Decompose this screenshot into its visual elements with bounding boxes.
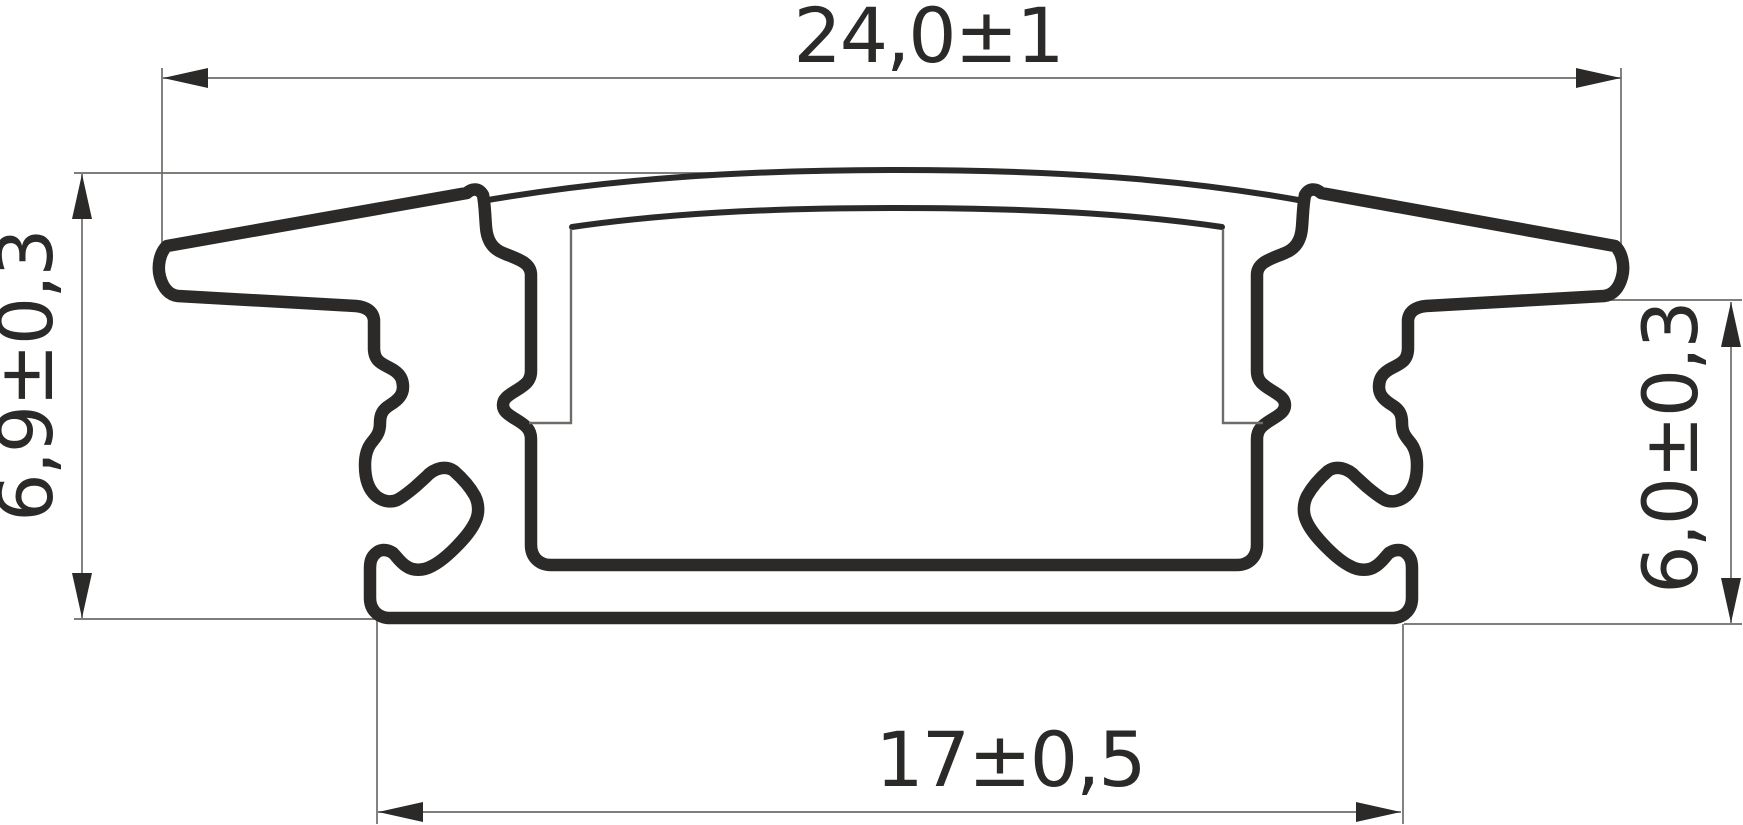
technical-drawing-canvas: 24,0±1 6,9±0,3 6,0±0,3 17±0,5 bbox=[0, 0, 1743, 825]
left-dim-arrow-bottom bbox=[72, 573, 92, 618]
top-dim-label: 24,0±1 bbox=[793, 0, 1062, 80]
diffuser-cover bbox=[482, 170, 1304, 227]
right-dim-label: 6,0±0,3 bbox=[1626, 302, 1715, 593]
dimension-labels: 24,0±1 6,9±0,3 6,0±0,3 17±0,5 bbox=[0, 0, 1715, 804]
bottom-dim-arrow-right bbox=[1356, 802, 1401, 822]
extension-lines bbox=[74, 68, 1742, 824]
top-dim-arrow-right bbox=[1576, 68, 1621, 88]
bottom-dim-label: 17±0,5 bbox=[875, 715, 1144, 804]
left-dim-arrow-top bbox=[72, 174, 92, 219]
cover-inner-arch bbox=[572, 208, 1222, 227]
dimension-arrows bbox=[72, 68, 1741, 822]
bottom-dim-arrow-left bbox=[378, 802, 423, 822]
aluminium-profile-outline bbox=[159, 189, 1623, 618]
inner-cavity-outline bbox=[529, 229, 1263, 423]
right-dim-arrow-bottom bbox=[1721, 578, 1741, 623]
dimension-lines bbox=[82, 78, 1731, 812]
cover-outer-arch bbox=[482, 170, 1304, 201]
profile-drawing: 24,0±1 6,9±0,3 6,0±0,3 17±0,5 bbox=[0, 0, 1743, 825]
top-dim-arrow-left bbox=[163, 68, 208, 88]
left-dim-label: 6,9±0,3 bbox=[0, 230, 70, 521]
right-dim-arrow-top bbox=[1721, 302, 1741, 347]
